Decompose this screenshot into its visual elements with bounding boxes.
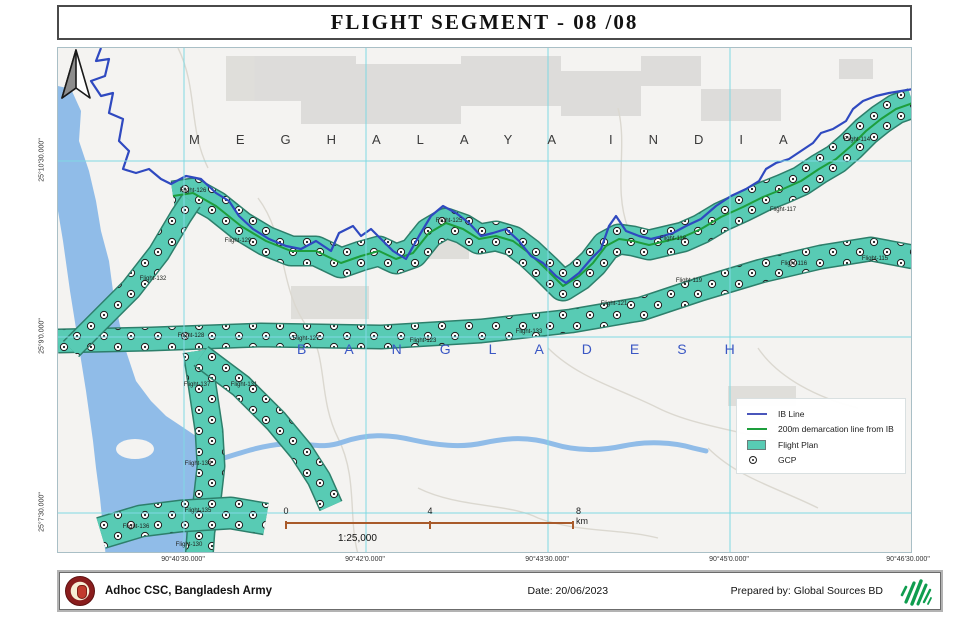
title-box: FLIGHT SEGMENT - 08 /08 [57, 5, 912, 40]
demarcation-swatch [747, 428, 771, 430]
lon-label-3: 90°45'0.000" [709, 556, 749, 563]
lon-label-0: 90°40'30.000" [161, 556, 205, 563]
page-title: FLIGHT SEGMENT - 08 /08 [331, 10, 639, 35]
scale-end: 8 km [576, 506, 588, 526]
map-svg [58, 48, 912, 553]
footer-bar: Adhoc CSC, Bangladesh Army Date: 20/06/2… [57, 570, 943, 612]
lon-label-2: 90°43'30.000" [525, 556, 569, 563]
river-island [116, 439, 154, 459]
lat-label-1: 25°9'0.000" [39, 318, 46, 354]
lat-label-2: 25°7'30.000" [39, 492, 46, 532]
prepared-by-text: Prepared by: Global Sources BD [731, 585, 883, 597]
army-emblem-logo [65, 576, 95, 606]
north-arrow-icon [58, 48, 94, 104]
footer-date: Date: 20/06/2023 [405, 585, 731, 597]
legend: IB Line 200m demarcation line from IB Fl… [736, 398, 906, 474]
ib-line-swatch [747, 413, 771, 415]
lon-label-4: 90°46'30.000" [886, 556, 930, 563]
lat-label-0: 25°10'30.000" [39, 138, 46, 182]
basemap-roads [178, 48, 858, 553]
map-canvas: MEGHALAYA INDIA BANGLADESH Flight-126Fli… [57, 47, 912, 553]
gcp-marker-icon [747, 456, 771, 464]
global-sources-bd-logo [897, 574, 933, 608]
legend-item-demarcation: 200m demarcation line from IB [747, 422, 897, 437]
flight-plan-swatch [747, 440, 771, 450]
footer-organization: Adhoc CSC, Bangladesh Army [65, 576, 405, 606]
map-layout-page: FLIGHT SEGMENT - 08 /08 [0, 0, 960, 640]
footer-prepared-by: Prepared by: Global Sources BD [731, 574, 933, 608]
legend-item-flight-plan: Flight Plan [747, 437, 897, 452]
organization-name: Adhoc CSC, Bangladesh Army [105, 585, 272, 597]
scale-start: 0 [283, 506, 288, 516]
scale-middle: 4 [427, 506, 432, 516]
scale-ratio: 1:25,000 [338, 533, 377, 544]
legend-item-gcp: GCP [747, 453, 897, 468]
scale-line [286, 522, 574, 524]
basemap-patches [226, 56, 873, 406]
lon-label-1: 90°42'0.000" [345, 556, 385, 563]
legend-item-ib-line: IB Line [747, 406, 897, 421]
